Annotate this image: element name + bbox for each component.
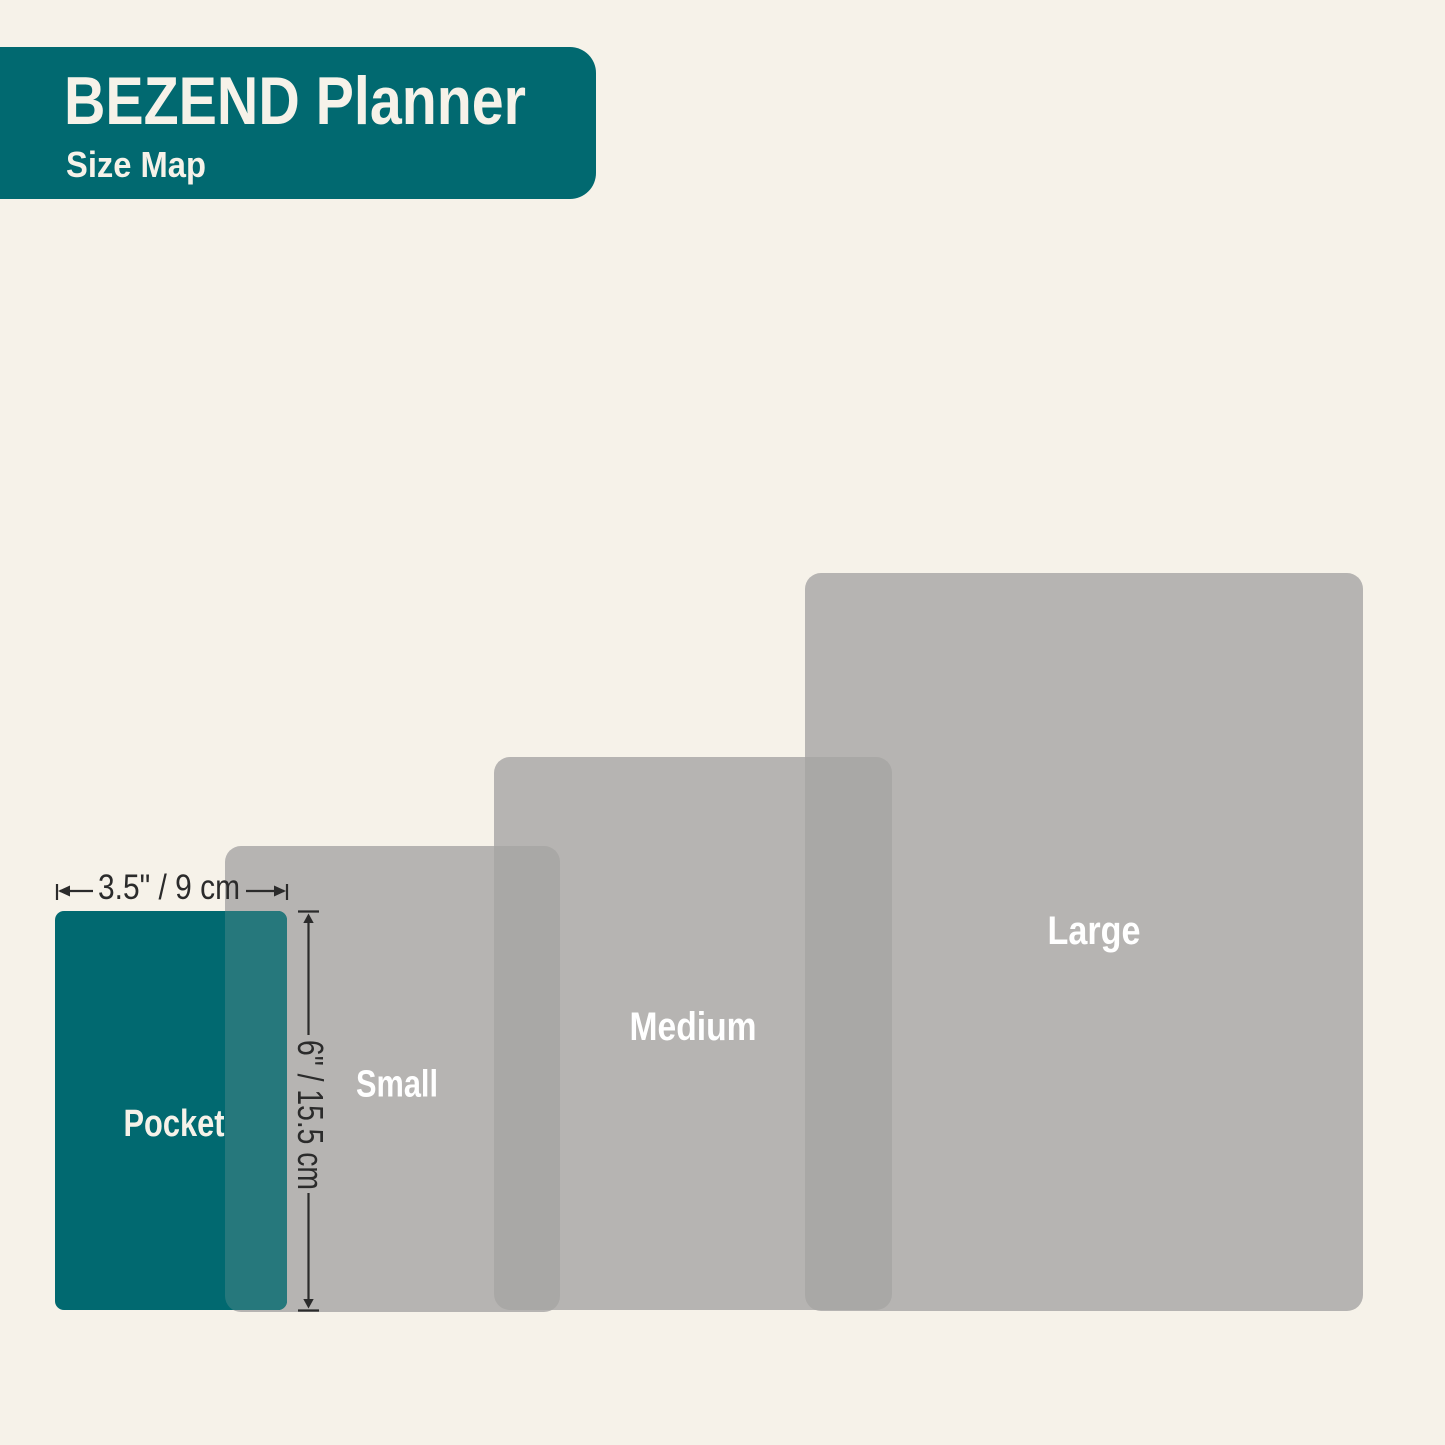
svg-text:Size Map: Size Map xyxy=(66,144,206,185)
svg-text:Large: Large xyxy=(1048,909,1141,953)
svg-text:BEZEND Planner: BEZEND Planner xyxy=(64,63,526,139)
svg-text:Medium: Medium xyxy=(630,1005,757,1049)
svg-text:3.5" / 9 cm: 3.5" / 9 cm xyxy=(98,868,240,907)
svg-text:Small: Small xyxy=(356,1064,438,1106)
svg-text:6" / 15.5 cm: 6" / 15.5 cm xyxy=(290,1040,331,1190)
svg-text:Pocket: Pocket xyxy=(124,1103,225,1145)
